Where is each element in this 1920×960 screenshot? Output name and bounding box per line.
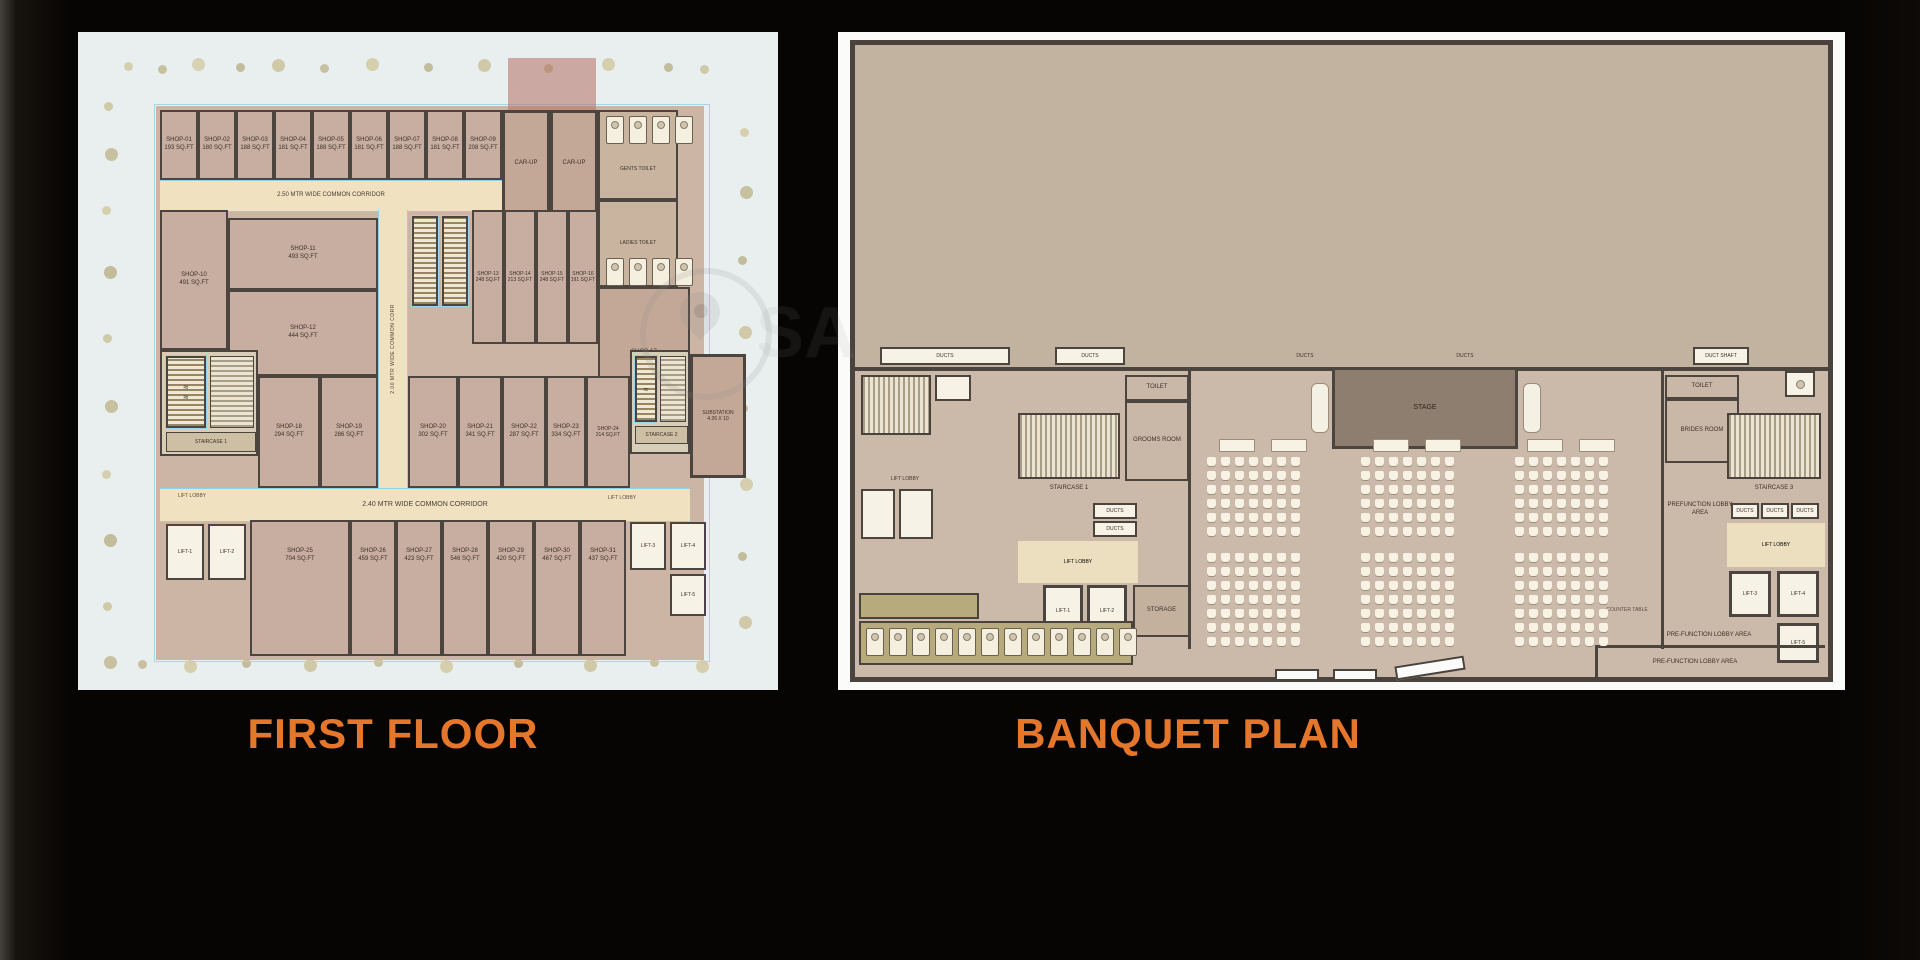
toilet-stall: [629, 258, 647, 286]
chair: [1207, 637, 1216, 646]
chair: [1417, 553, 1426, 562]
tree-col-right: [740, 128, 749, 137]
chair: [1445, 527, 1454, 536]
stage-speaker-left: [1311, 383, 1329, 433]
chair: [1389, 553, 1398, 562]
prefunction-wall-h: [1595, 645, 1825, 648]
chair: [1375, 567, 1384, 576]
chair: [1529, 623, 1538, 632]
chair: [1277, 553, 1286, 562]
far-left-duct: [935, 375, 971, 401]
chair: [1431, 499, 1440, 508]
chair: [1207, 513, 1216, 522]
chair: [1235, 567, 1244, 576]
lift-lobby-left-label: LIFT LOBBY: [164, 490, 220, 502]
chair: [1375, 485, 1384, 494]
wc-icon: [1796, 380, 1805, 389]
room-lift-4: LIFT-4: [670, 522, 706, 570]
room-shop-10: SHOP-10491 SQ.FT: [160, 210, 228, 350]
terrace-area: [855, 45, 1828, 367]
first-floor-title: FIRST FLOOR: [78, 710, 708, 758]
chair: [1599, 595, 1608, 604]
chair: [1207, 567, 1216, 576]
lift-lobby-right-area: LIFT LOBBY: [1727, 523, 1825, 567]
chair: [1529, 527, 1538, 536]
chair: [1403, 499, 1412, 508]
chair: [1263, 595, 1272, 604]
chair: [1571, 471, 1580, 480]
tree-row-top: [124, 62, 133, 71]
chair: [1585, 567, 1594, 576]
wc-room-top-right: [1785, 371, 1815, 397]
room-toilet-left: TOILET: [1125, 375, 1189, 401]
chair: [1431, 581, 1440, 590]
room-ladies-toilet: LADIES TOILET: [598, 200, 678, 287]
chair: [1529, 471, 1538, 480]
chair: [1571, 567, 1580, 576]
chair: [1431, 567, 1440, 576]
chair: [1571, 595, 1580, 604]
chair: [1445, 485, 1454, 494]
chair: [1445, 499, 1454, 508]
room-shop-23: SHOP-23334 SQ.FT: [546, 376, 586, 488]
chair: [1291, 609, 1300, 618]
chair: [1431, 553, 1440, 562]
toilet-stalls-row: [866, 628, 1137, 656]
chair: [1375, 595, 1384, 604]
chair: [1291, 637, 1300, 646]
chair: [1263, 527, 1272, 536]
seating-block-lower-1: [1207, 553, 1300, 646]
staircase-1-hatch: [1018, 413, 1120, 479]
chair: [1263, 513, 1272, 522]
chair: [1599, 637, 1608, 646]
chair: [1207, 553, 1216, 562]
chair: [1375, 513, 1384, 522]
chair: [1375, 527, 1384, 536]
chair: [1585, 623, 1594, 632]
room-car-up-1: CAR-UP: [502, 110, 550, 218]
room-shop-31: SHOP-31437 SQ.FT: [580, 520, 626, 656]
room-shop-29: SHOP-29420 SQ.FT: [488, 520, 534, 656]
chair: [1263, 553, 1272, 562]
tree-row-bottom: [138, 660, 147, 669]
far-left-lobby-label: LIFT LOBBY: [865, 473, 945, 485]
chair: [1249, 567, 1258, 576]
chair: [1557, 623, 1566, 632]
room-shop-25: SHOP-25704 SQ.FT: [250, 520, 350, 656]
chair: [1249, 527, 1258, 536]
chair: [1571, 457, 1580, 466]
room-shop-26: SHOP-26459 SQ.FT: [350, 520, 396, 656]
chair: [1249, 595, 1258, 604]
corridor-vertical: 2.00 MTR WIDE COMMON CORR: [378, 210, 408, 488]
chair: [1417, 637, 1426, 646]
chair: [1389, 457, 1398, 466]
chair: [1249, 499, 1258, 508]
room-shop-21: SHOP-21341 SQ.FT: [458, 376, 502, 488]
banquet-lift-3: LIFT-3: [1729, 571, 1771, 617]
chair: [1207, 499, 1216, 508]
chair: [1235, 457, 1244, 466]
chair: [1389, 485, 1398, 494]
chair: [1277, 623, 1286, 632]
chair: [1515, 485, 1524, 494]
chair: [1277, 609, 1286, 618]
ducts-label-mid2: DUCTS: [1445, 351, 1485, 361]
ducts-label-mid1: DUCTS: [1285, 351, 1325, 361]
toilet-stall: [935, 628, 953, 656]
chair: [1543, 609, 1552, 618]
chair: [1529, 457, 1538, 466]
room-shop-05: SHOP-05188 SQ.FT: [312, 110, 350, 180]
chair: [1249, 623, 1258, 632]
banquet-plan-title: BANQUET PLAN: [838, 710, 1538, 758]
room-shop-24: SHOP-24314 SQ.FT: [586, 376, 630, 488]
chair: [1389, 637, 1398, 646]
far-left-room-2: [899, 489, 933, 539]
chair: [1389, 527, 1398, 536]
chair: [1221, 457, 1230, 466]
entrance-notch-2: [1333, 669, 1377, 679]
chair: [1543, 471, 1552, 480]
toilet-stall: [675, 116, 693, 144]
seating-block-upper-1: [1207, 457, 1300, 536]
chair: [1445, 567, 1454, 576]
chair: [1207, 471, 1216, 480]
chair: [1543, 457, 1552, 466]
room-shop-20: SHOP-20302 SQ.FT: [408, 376, 458, 488]
chair: [1375, 637, 1384, 646]
chair: [1571, 609, 1580, 618]
chair: [1361, 499, 1370, 508]
room-shop-13: SHOP-13248 SQ.FT: [472, 210, 504, 344]
chair: [1543, 581, 1552, 590]
chair: [1599, 553, 1608, 562]
chair: [1375, 623, 1384, 632]
banquet-lift-5: LIFT-5: [1777, 623, 1819, 663]
chair: [1389, 471, 1398, 480]
head-table: [1527, 439, 1563, 452]
chair: [1515, 567, 1524, 576]
toilet-stall: [606, 258, 624, 286]
chair: [1291, 527, 1300, 536]
chair: [1431, 457, 1440, 466]
chair: [1557, 485, 1566, 494]
chair: [1361, 457, 1370, 466]
chair: [1571, 581, 1580, 590]
chair: [1389, 609, 1398, 618]
chair: [1571, 623, 1580, 632]
chair: [1571, 513, 1580, 522]
chair: [1249, 485, 1258, 494]
chair: [1263, 485, 1272, 494]
escalator-stair1: ≈≈: [166, 356, 206, 428]
chair: [1417, 581, 1426, 590]
head-table: [1219, 439, 1255, 452]
toilet-stall: [1096, 628, 1114, 656]
chair: [1291, 485, 1300, 494]
chair: [1585, 513, 1594, 522]
chair: [1571, 527, 1580, 536]
room-shop-15: SHOP-15248 SQ.FT: [536, 210, 568, 344]
chair: [1249, 471, 1258, 480]
chair: [1529, 581, 1538, 590]
chair: [1529, 485, 1538, 494]
chair: [1207, 485, 1216, 494]
chair: [1361, 567, 1370, 576]
chair: [1277, 581, 1286, 590]
chair: [1263, 623, 1272, 632]
chair: [1249, 581, 1258, 590]
staircase-2-block: ≈ STAIRCASE 2: [630, 350, 690, 454]
chair: [1235, 595, 1244, 604]
chair: [1417, 567, 1426, 576]
chair: [1417, 485, 1426, 494]
chair: [1557, 595, 1566, 604]
duct-bar-cluster: DUCTS: [1055, 347, 1125, 365]
chair: [1417, 527, 1426, 536]
head-table: [1271, 439, 1307, 452]
room-shop-08: SHOP-08181 SQ.FT: [426, 110, 464, 180]
chair: [1599, 471, 1608, 480]
head-table: [1579, 439, 1615, 452]
banquet-lift-4: LIFT-4: [1777, 571, 1819, 617]
chair: [1403, 567, 1412, 576]
chair: [1431, 609, 1440, 618]
chair: [1263, 581, 1272, 590]
chair: [1585, 595, 1594, 604]
chair: [1235, 527, 1244, 536]
chair: [1403, 457, 1412, 466]
pre-function-lower-label: PRE-FUNCTION LOBBY AREA: [1615, 651, 1775, 675]
staircase-1-label: STAIRCASE 1: [166, 432, 256, 452]
chair: [1557, 609, 1566, 618]
toilet-stall: [1073, 628, 1091, 656]
chair: [1235, 471, 1244, 480]
escalator-mid-2: [442, 216, 468, 306]
chair: [1277, 595, 1286, 604]
toilet-stall: [1004, 628, 1022, 656]
chair: [1403, 637, 1412, 646]
chair: [1431, 527, 1440, 536]
toilet-stall: [606, 116, 624, 144]
chair: [1389, 595, 1398, 604]
chair: [1599, 527, 1608, 536]
chair: [1263, 609, 1272, 618]
chair: [1221, 499, 1230, 508]
chair: [1291, 623, 1300, 632]
chair: [1277, 637, 1286, 646]
chair: [1529, 553, 1538, 562]
chair: [1375, 609, 1384, 618]
escalator-stair2: ≈: [635, 356, 657, 422]
chair: [1361, 553, 1370, 562]
chair: [1375, 553, 1384, 562]
stage-speaker-right: [1523, 383, 1541, 433]
chair: [1291, 567, 1300, 576]
duct-box-a: DUCTS: [1093, 503, 1137, 519]
chair: [1403, 553, 1412, 562]
chair: [1389, 581, 1398, 590]
room-shop-06: SHOP-06181 SQ.FT: [350, 110, 388, 180]
chair: [1599, 499, 1608, 508]
toilet-block-bottom-left-2: [859, 593, 979, 619]
right-wing-wall: [1661, 367, 1664, 649]
chair: [1263, 637, 1272, 646]
staircase-1-label: STAIRCASE 1: [1018, 483, 1120, 495]
toilet-stall: [629, 116, 647, 144]
chair: [1291, 513, 1300, 522]
chair: [1445, 623, 1454, 632]
stair1-hatch: [210, 356, 254, 428]
room-lift-1: LIFT-1: [166, 524, 204, 580]
chair: [1361, 471, 1370, 480]
prefunction-label: PREFUNCTION LOBBY AREA: [1665, 489, 1735, 531]
room-lift-2: LIFT-2: [208, 524, 246, 580]
staircase-1-block: ≈≈ STAIRCASE 1: [160, 350, 258, 456]
chair: [1235, 513, 1244, 522]
chair: [1375, 581, 1384, 590]
room-shop-18: SHOP-18294 SQ.FT: [258, 376, 320, 488]
seating-block-lower-3: [1515, 553, 1608, 646]
chair: [1291, 553, 1300, 562]
toilet-stall: [889, 628, 907, 656]
stair2-hatch: [660, 356, 686, 422]
chair: [1249, 609, 1258, 618]
chair: [1585, 527, 1594, 536]
chair: [1207, 595, 1216, 604]
toilet-stall: [652, 116, 670, 144]
chair: [1263, 457, 1272, 466]
chair: [1277, 499, 1286, 508]
chair: [1571, 553, 1580, 562]
chair: [1599, 457, 1608, 466]
chair: [1599, 513, 1608, 522]
chair: [1389, 499, 1398, 508]
chair: [1235, 499, 1244, 508]
toilet-stall: [675, 258, 693, 286]
chair: [1235, 609, 1244, 618]
chair: [1291, 457, 1300, 466]
chair: [1403, 581, 1412, 590]
chair: [1417, 609, 1426, 618]
toilet-stall: [912, 628, 930, 656]
far-left-stair: [861, 375, 931, 435]
chair: [1543, 567, 1552, 576]
chair: [1249, 513, 1258, 522]
seating-block-upper-3: [1515, 457, 1608, 536]
chair: [1557, 513, 1566, 522]
toilet-block-bottom-left: [859, 621, 1133, 665]
chair: [1445, 513, 1454, 522]
duct-box-r1: DUCTS: [1731, 503, 1759, 519]
chair: [1221, 553, 1230, 562]
room-shop-01: SHOP-01193 SQ.FT: [160, 110, 198, 180]
toilet-stall: [958, 628, 976, 656]
room-shop-22: SHOP-22287 SQ.FT: [502, 376, 546, 488]
chair: [1529, 609, 1538, 618]
chair: [1585, 499, 1594, 508]
stage: STAGE: [1332, 367, 1518, 449]
toilet-stall: [1119, 628, 1137, 656]
chair: [1277, 457, 1286, 466]
toilet-stall: [1027, 628, 1045, 656]
chair: [1375, 471, 1384, 480]
toilet-stall: [866, 628, 884, 656]
chair: [1557, 553, 1566, 562]
chair: [1235, 637, 1244, 646]
chair: [1571, 485, 1580, 494]
chair: [1599, 567, 1608, 576]
chair: [1585, 609, 1594, 618]
chair: [1417, 595, 1426, 604]
chair: [1543, 623, 1552, 632]
toilet-stall: [652, 258, 670, 286]
room-storage: STORAGE: [1133, 585, 1190, 637]
chair: [1431, 623, 1440, 632]
chair: [1445, 471, 1454, 480]
chair: [1557, 527, 1566, 536]
chair: [1585, 471, 1594, 480]
chair: [1515, 637, 1524, 646]
room-grooms: GROOMS ROOM: [1125, 401, 1189, 481]
chair: [1445, 553, 1454, 562]
chair: [1515, 595, 1524, 604]
chair: [1529, 595, 1538, 604]
chair: [1529, 567, 1538, 576]
chair: [1277, 513, 1286, 522]
chair: [1515, 623, 1524, 632]
chair: [1529, 513, 1538, 522]
chair: [1403, 513, 1412, 522]
chair: [1599, 485, 1608, 494]
chair: [1543, 527, 1552, 536]
chair: [1361, 527, 1370, 536]
chair: [1515, 553, 1524, 562]
chair: [1221, 485, 1230, 494]
chair: [1221, 527, 1230, 536]
chair: [1445, 637, 1454, 646]
chair: [1235, 581, 1244, 590]
lift-lobby-right-label: LIFT LOBBY: [594, 492, 650, 504]
lift-lobby-left-area: LIFT LOBBY: [1018, 541, 1138, 583]
banquet-panel: DUCTS DUCTS DUCTS DUCTS DUCT SHAFT STAGE…: [838, 32, 1845, 690]
head-table: [1425, 439, 1461, 452]
room-car-up-2: CAR-UP: [550, 110, 598, 218]
chair: [1543, 637, 1552, 646]
duct-box-r3: DUCTS: [1791, 503, 1819, 519]
room-shop-04: SHOP-04181 SQ.FT: [274, 110, 312, 180]
chair: [1431, 485, 1440, 494]
duct-bar-left: DUCTS: [880, 347, 1010, 365]
chair: [1221, 471, 1230, 480]
chair: [1515, 499, 1524, 508]
chair: [1207, 527, 1216, 536]
chair: [1571, 637, 1580, 646]
chair: [1221, 581, 1230, 590]
ramp-above: [508, 58, 596, 112]
gents-stalls: [606, 116, 693, 144]
head-table: [1373, 439, 1409, 452]
room-shop-30: SHOP-30467 SQ.FT: [534, 520, 580, 656]
room-shop-07: SHOP-07188 SQ.FT: [388, 110, 426, 180]
seating-block-upper-2: [1361, 457, 1454, 536]
chair: [1515, 471, 1524, 480]
chair: [1361, 623, 1370, 632]
prefunction-wall-v: [1595, 645, 1598, 677]
toilet-stall: [981, 628, 999, 656]
